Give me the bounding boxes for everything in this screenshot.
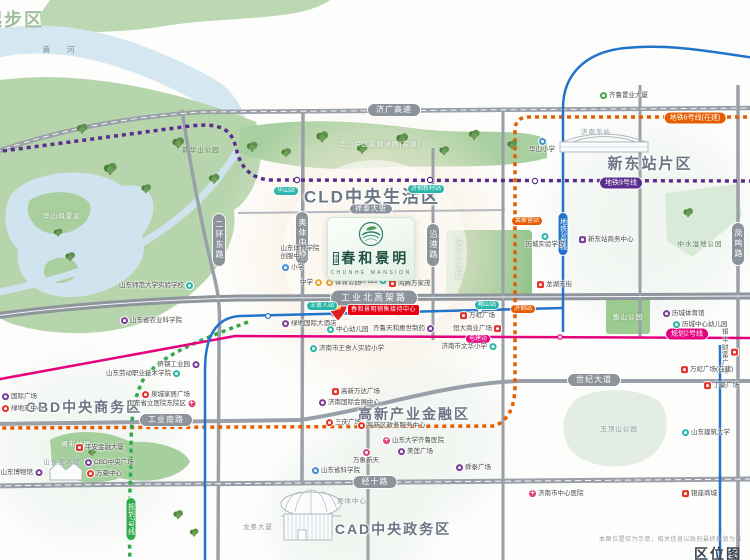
poi-label: 新东站商务中心 <box>588 236 634 244</box>
road-pill: 世纪大道 <box>568 374 620 386</box>
place-icon <box>121 317 128 324</box>
metro-station-pill: 王舍人站 <box>307 302 337 310</box>
project-name-row: 中建 春和景明 <box>333 248 410 268</box>
road-pill: 沿港路 <box>427 224 439 266</box>
poi: +济南市中心医院 <box>529 490 584 498</box>
mall-icon <box>76 444 83 451</box>
road-pill: 济广高速 <box>368 104 420 116</box>
place-icon <box>326 419 333 426</box>
sales-center-flag: 春和景明销售接待中心 <box>348 305 419 315</box>
location-map: CLD中央生活区新东站片区CBD中央商务区高新产业金融区CAD中央政务区济广高速… <box>0 0 750 560</box>
poi-label: 高新万达广场 <box>341 388 380 396</box>
poi: 山东博物馆 <box>1 469 43 477</box>
poi-label: 中学 <box>300 279 313 287</box>
poi: 济南国际会展中心 <box>319 399 380 407</box>
poi-label: 山东省立医院东院区 <box>128 400 187 408</box>
place-icon <box>319 399 326 406</box>
poi-label: 山东师范大学实验学校 <box>119 282 184 290</box>
metro-station-pill: 电建站 <box>466 335 490 343</box>
poi: 山东师范大学实验学校 <box>119 282 193 290</box>
mall-icon <box>494 325 501 332</box>
poi-label: 华山小学 <box>529 146 555 154</box>
place-icon <box>542 233 549 240</box>
hospital-icon: + <box>529 490 536 497</box>
poi-label: 山东省农业科学院 <box>130 317 182 325</box>
metro-station-pill: 济钢站 <box>511 305 535 313</box>
place-icon <box>142 391 149 398</box>
hospital-icon: + <box>383 437 390 444</box>
poi-label: 济南国际会展中心 <box>328 399 380 407</box>
district-label: 新东站片区 <box>607 153 692 174</box>
poi-label: 山东省科学院 <box>321 467 360 475</box>
place-icon <box>363 449 370 456</box>
poi-label: 中心幼儿园 <box>336 326 369 334</box>
poi-label: 齐鲁天和惠世制药 <box>373 325 425 333</box>
poi: 银座商城 <box>682 490 717 498</box>
place-icon <box>663 310 670 317</box>
poi: 济南市文华小学 <box>442 343 497 351</box>
poi: 新东站商务中心 <box>579 236 634 244</box>
project-logo-icon <box>358 221 384 247</box>
start-zone-label: 起步区 <box>0 6 44 32</box>
metro-line-pill: 规划2号线 <box>666 329 708 340</box>
place-icon <box>186 282 193 289</box>
metro-line-pill: 地铁6号线(在建) <box>665 113 726 124</box>
metro-line-pill: 地铁9号线 <box>600 178 642 189</box>
poi-label: 山东大学齐鲁医院 <box>392 437 444 445</box>
poi-label: 万象新天 <box>353 457 379 465</box>
park-label: 龙奥大厦 <box>243 521 273 531</box>
road-pill: 工业北高架路 <box>331 291 417 306</box>
project-name: 春和景明 <box>341 248 409 268</box>
place-icon <box>489 343 496 350</box>
poi-label: 齐鲁置业大厦 <box>609 92 648 100</box>
poi: 山东劳动职业技术学院 <box>106 370 180 378</box>
poi: 恒大商业广场 <box>453 325 501 333</box>
poi: 济钢工业园 <box>158 361 200 369</box>
place-icon <box>310 345 317 352</box>
map-title: 区位图 <box>694 544 742 560</box>
place-icon <box>398 448 405 455</box>
poi: 华山小学 <box>529 138 555 154</box>
poi: 历城实验学校 <box>526 233 565 249</box>
poi: 中学 <box>300 279 322 287</box>
place-icon <box>282 264 289 271</box>
mall-icon <box>332 388 339 395</box>
place-icon <box>85 459 92 466</box>
place-icon <box>539 138 546 145</box>
poi-label: 历城体育馆 <box>672 310 705 318</box>
poi-label: 济钢工业园 <box>158 361 191 369</box>
poi: 山东建筑大学 <box>682 429 730 437</box>
poi-label: 龙湖天街 <box>546 281 572 289</box>
place-icon <box>358 422 365 429</box>
place-icon <box>35 469 42 476</box>
road-pill: 经十路 <box>354 476 397 488</box>
poi: CBD中央广场 <box>85 459 134 467</box>
poi: 龙湖天街 <box>537 281 572 289</box>
project-logo-card: 中建 春和景明 CHUNHE MANSION <box>327 217 415 281</box>
place-icon <box>192 361 199 368</box>
poi: 美莲广场 <box>398 448 433 456</box>
poi-label: 美莲广场 <box>407 448 433 456</box>
place-icon <box>673 321 680 328</box>
park-label: 鹊华山公园 <box>182 144 220 154</box>
poi: 万豪中心 <box>87 470 122 478</box>
park-label: 鲍山公园 <box>613 311 643 321</box>
poi: 万虹广场(在建) <box>681 366 733 374</box>
park-label: 济南东站 <box>581 126 611 136</box>
poi: 鸿腾万家茂 <box>389 280 431 288</box>
poi: 泉城家居广场 <box>142 391 190 399</box>
mall-icon <box>681 366 688 373</box>
poi-label: 恒大商业广场 <box>453 325 492 333</box>
poi-label: 银座商城 <box>691 490 717 498</box>
park-label: 黄 河 <box>42 45 81 56</box>
hospital-icon: + <box>188 400 195 407</box>
poi: +山东大学齐鲁医院 <box>383 437 444 445</box>
poi-label: 万豪中心 <box>96 470 122 478</box>
park-label: 中水湿地公园 <box>678 238 723 248</box>
place-icon <box>682 429 689 436</box>
mall-icon <box>460 312 467 319</box>
place-icon <box>312 467 319 474</box>
poi: 齐鲁置业大厦 <box>600 92 648 100</box>
poi: 绿地汇中心 <box>2 405 44 413</box>
poi-label: 国际广场 <box>11 393 37 401</box>
place-icon <box>327 326 334 333</box>
poi: 平安金融大厦 <box>76 444 124 452</box>
mall-icon <box>537 281 544 288</box>
poi-label: 济南市王舍人实验小学 <box>319 345 384 353</box>
district-label: CAD中央政务区 <box>335 519 451 539</box>
mall-icon <box>389 280 396 287</box>
poi-label: 万虹广场 <box>469 312 495 320</box>
map-disclaimer: 本图位置仅为示意，相关信息以政府最终规划为准 <box>599 534 742 543</box>
poi: 济南市王舍人实验小学 <box>310 345 384 353</box>
place-icon <box>2 393 9 400</box>
poi-label: 鸿腾万家茂 <box>398 280 431 288</box>
poi: 国际广场 <box>2 393 37 401</box>
park-label: 华山风景区 <box>43 210 81 220</box>
poi: 丁豪广场 <box>704 382 739 390</box>
park-label: 华山片区景观绿廊(在建) <box>339 138 420 148</box>
place-icon <box>87 470 94 477</box>
poi-label: 平安金融大厦 <box>85 444 124 452</box>
poi-label: 丁豪广场 <box>713 382 739 390</box>
metro-station-pill: 裴家营站 <box>512 217 542 225</box>
place-icon <box>282 320 289 327</box>
poi: 山东省立医院东院区+ <box>128 400 196 408</box>
road-pill: 凤鸣路 <box>732 223 744 265</box>
poi-label: 小学 <box>291 264 304 272</box>
poi: 历城中心幼儿园 <box>673 321 728 329</box>
project-brand-prefix: 中建 <box>333 252 340 265</box>
place-icon <box>427 325 434 332</box>
poi: 舜泰广场 <box>456 464 491 472</box>
mall-icon <box>682 490 689 497</box>
poi: 历城体育馆 <box>663 310 705 318</box>
poi: 小学 <box>282 264 304 272</box>
poi: 中心幼儿园 <box>327 326 369 334</box>
place-icon <box>456 464 463 471</box>
mall-icon <box>731 349 738 356</box>
park-label: 奥体中心 <box>337 495 367 505</box>
road-pill: 祥泰大街 <box>350 205 392 214</box>
poi-label: CBD中央广场 <box>94 459 134 467</box>
park-label: 玉顶山公园 <box>600 423 638 433</box>
poi: 三庆广场 <box>326 419 361 427</box>
poi: 高新区政务服务中心 <box>358 422 426 430</box>
mall-icon <box>579 236 586 243</box>
poi-label: 泉城家居广场 <box>151 391 190 399</box>
place-icon <box>600 92 607 99</box>
poi-label: 绿地汇中心 <box>11 405 44 413</box>
poi: 万象新天 <box>353 449 379 465</box>
metro-line-pill: 规划7号线 <box>127 498 136 540</box>
poi-label: 历城实验学校 <box>526 241 565 249</box>
poi-label: 济南市文华小学 <box>442 343 488 351</box>
poi-label: 万虹广场(在建) <box>690 366 733 374</box>
mall-icon <box>704 382 711 389</box>
poi-label: 济南市中心医院 <box>538 490 584 498</box>
park-label: 滨河生态园 <box>452 238 462 281</box>
poi-label: 舜泰广场 <box>465 464 491 472</box>
metro-station-pill: 华山站 <box>274 187 298 195</box>
park-label: 山东美术馆 <box>43 456 81 466</box>
poi-label: 山东体育学院 创服中心 <box>281 245 320 261</box>
place-icon <box>315 279 322 286</box>
poi: 万虹广场 <box>460 312 495 320</box>
metro-station-pill: 鲍山站 <box>475 301 499 309</box>
metro-station-pill: 济钢新村站 <box>408 185 444 193</box>
poi: 齐鲁天和惠世制药 <box>373 325 434 333</box>
poi-label: 山东建筑大学 <box>691 429 730 437</box>
poi: 山东省科学院 <box>312 467 360 475</box>
poi-label: 山东劳动职业技术学院 <box>106 370 171 378</box>
place-icon <box>173 370 180 377</box>
road-pill: 工业南路 <box>140 414 192 426</box>
poi-label: 高新区政务服务中心 <box>367 422 426 430</box>
poi: 山东省农业科学院 <box>121 317 182 325</box>
poi-label: 山东博物馆 <box>1 469 34 477</box>
project-name-en: CHUNHE MANSION <box>330 270 411 276</box>
poi: 高新万达广场 <box>332 388 380 396</box>
place-icon <box>2 405 9 412</box>
poi: 山东体育学院 创服中心 <box>281 245 320 261</box>
road-pill: 二环东路 <box>213 214 225 266</box>
poi-label: 历城中心幼儿园 <box>682 321 728 329</box>
district-label: 高新产业金融区 <box>358 404 470 424</box>
